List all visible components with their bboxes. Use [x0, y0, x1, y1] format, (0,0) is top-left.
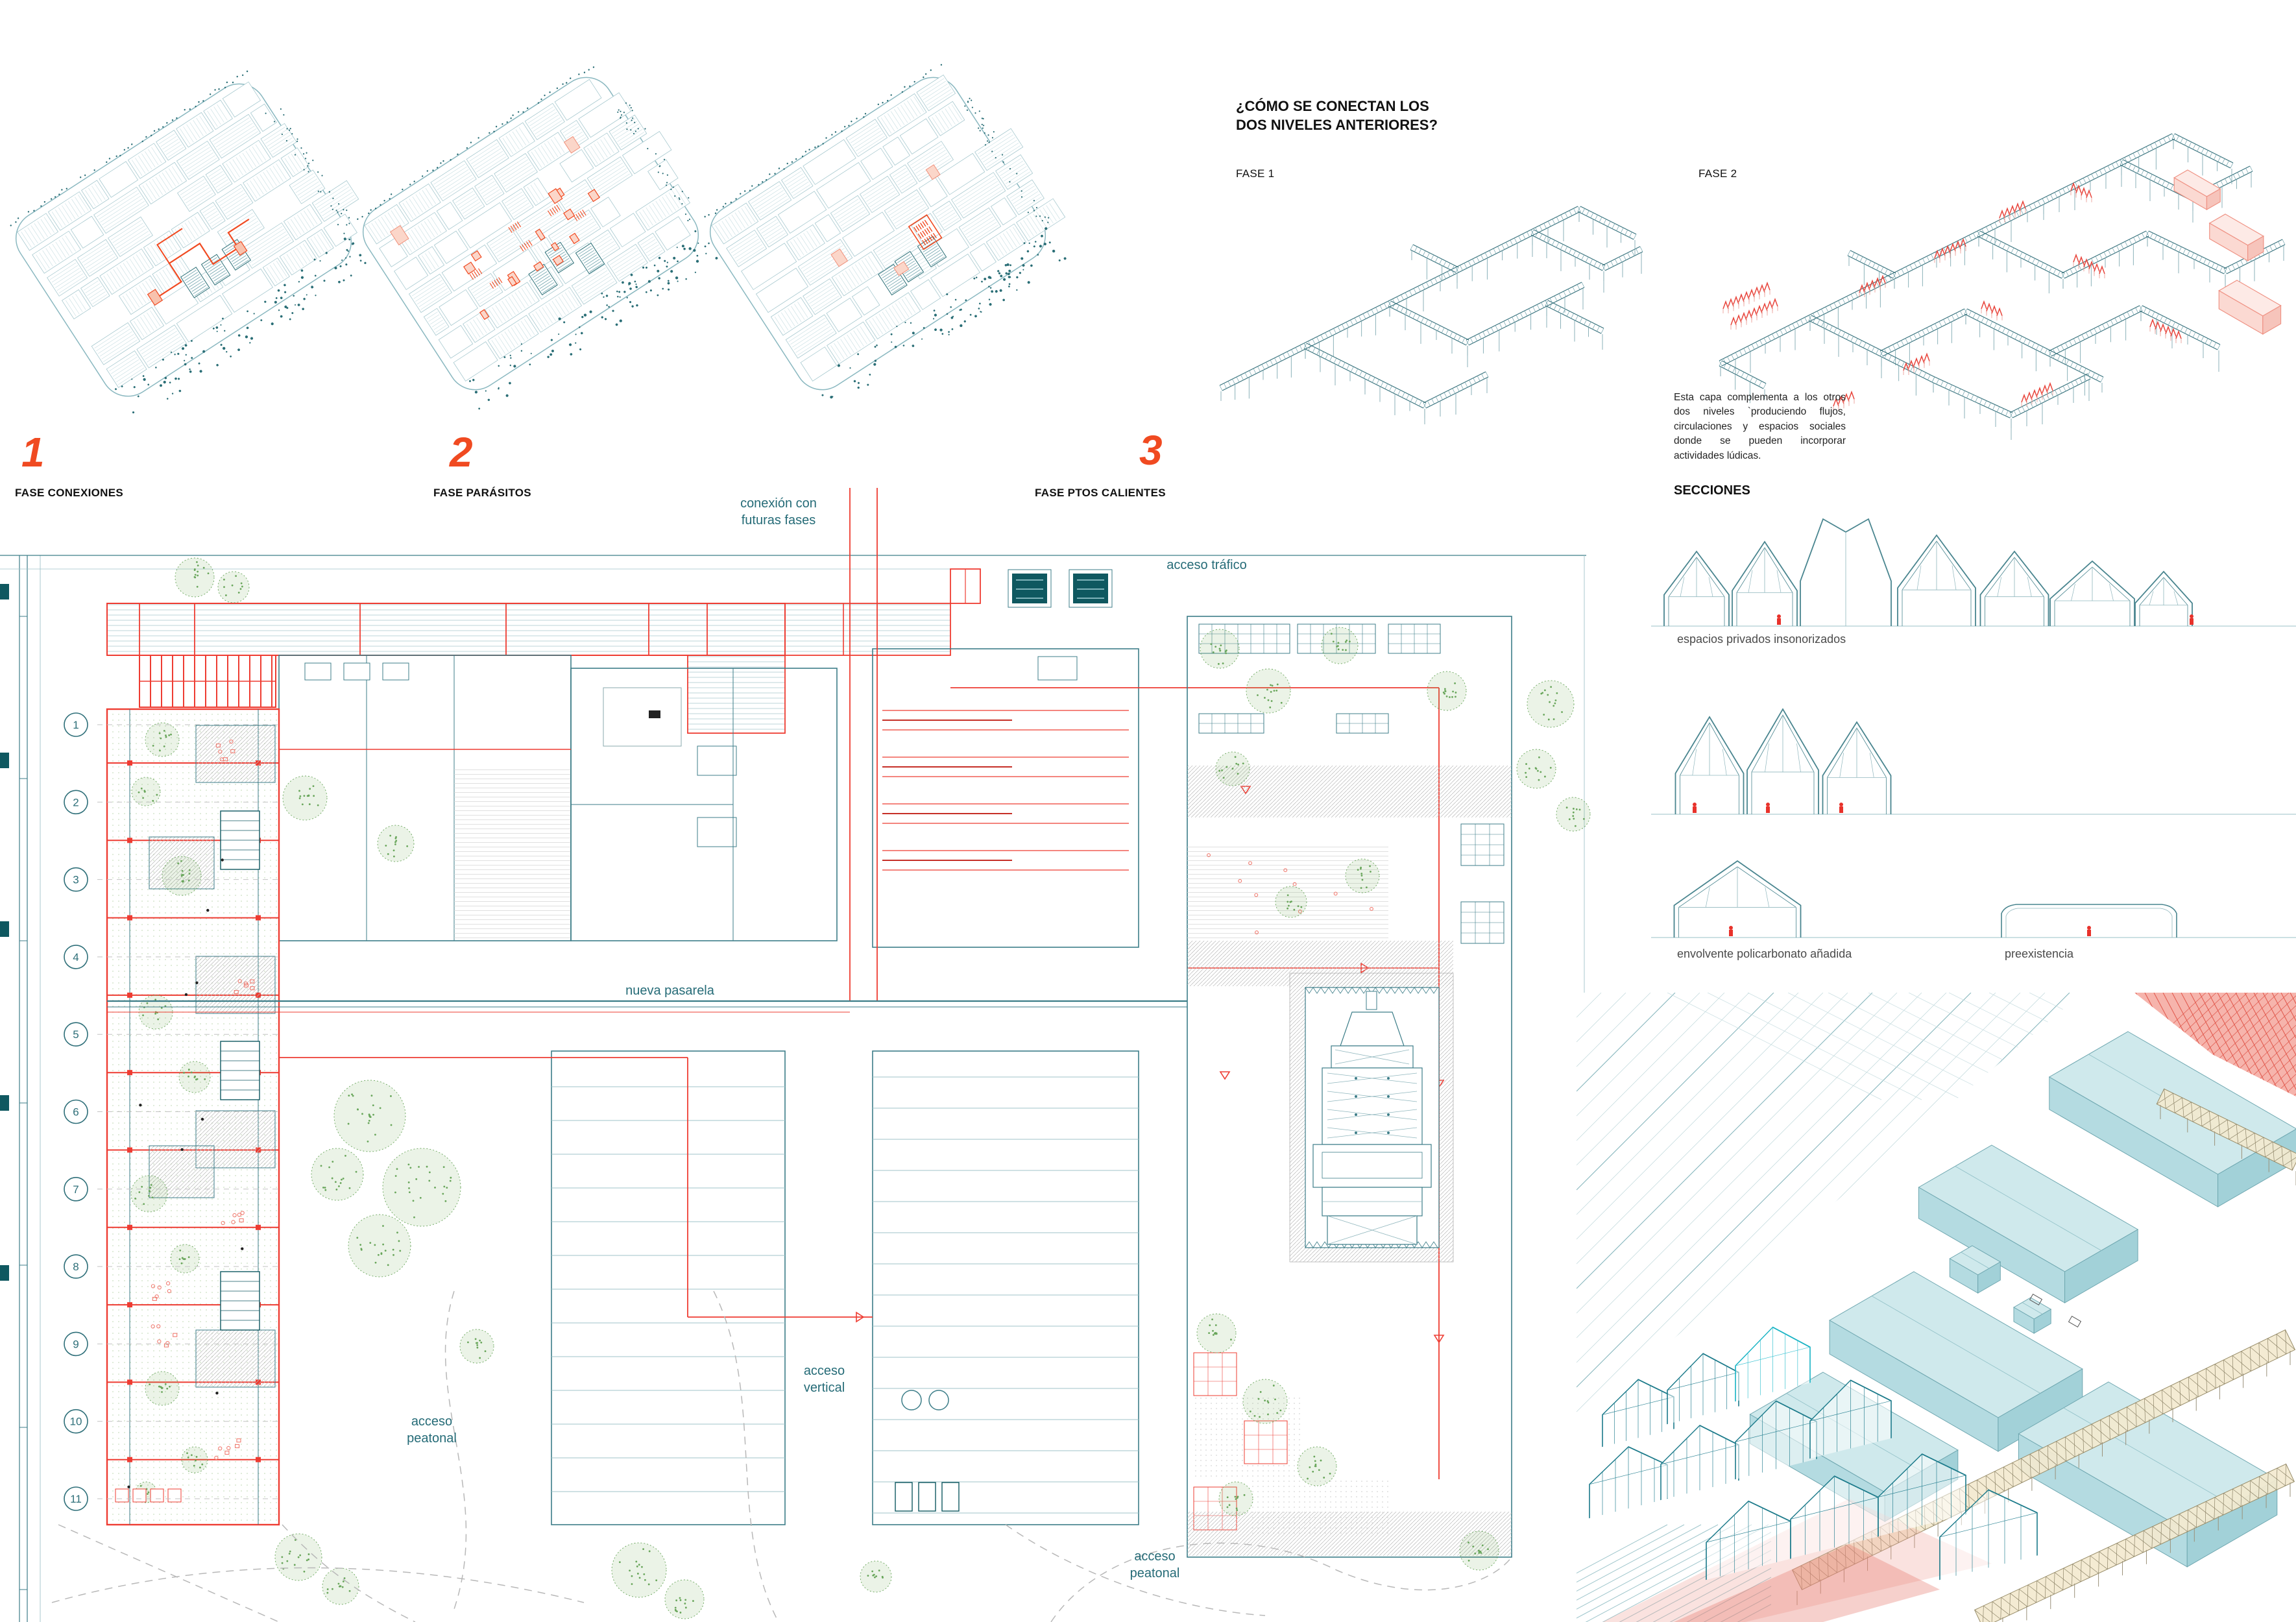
- phase-3-number: 3: [1139, 430, 1163, 471]
- section-label-envolvente: envolvente policarbonato añadida: [1677, 947, 1852, 961]
- svg-text:9: 9: [73, 1338, 79, 1350]
- plan-label-acceso-trafico: acceso tráfico: [1142, 557, 1272, 574]
- phase-1-label: FASE CONEXIONES: [15, 487, 123, 500]
- section-label-insonorizados: espacios privados insonorizados: [1677, 633, 1846, 646]
- plan-label-conexion: conexión con futuras fases: [714, 495, 843, 529]
- svg-text:3: 3: [73, 874, 79, 886]
- svg-text:6: 6: [73, 1106, 79, 1118]
- phase-3-label: FASE PTOS CALIENTES: [1035, 487, 1166, 500]
- plan-label-acceso-peatonal-bottom: acceso peatonal: [1103, 1548, 1207, 1582]
- svg-text:7: 7: [73, 1183, 79, 1196]
- connection-question-title: ¿CÓMO SE CONECTAN LOS DOS NIVELES ANTERI…: [1236, 97, 1438, 134]
- final-axonometric-render: [1577, 993, 2296, 1622]
- fase-1-axonometric-drawing: [1207, 143, 1667, 467]
- site-plan-phase-1-drawing: [10, 45, 363, 451]
- master-plan-drawing: 1234567891011: [0, 519, 1596, 1622]
- svg-text:10: 10: [70, 1416, 82, 1428]
- svg-text:4: 4: [73, 951, 79, 963]
- plan-label-nueva-pasarela: nueva pasarela: [610, 982, 730, 999]
- presentation-board: 1 FASE CONEXIONES 2 FASE PARÁSITOS 3 FAS…: [0, 0, 2296, 1622]
- section-label-preexistencia: preexistencia: [2005, 947, 2073, 961]
- phase-2-number: 2: [450, 431, 473, 473]
- svg-text:1: 1: [73, 719, 79, 731]
- svg-text:2: 2: [73, 796, 79, 808]
- phase-2-label: FASE PARÁSITOS: [433, 487, 531, 500]
- sections-title: SECCIONES: [1674, 483, 1750, 498]
- svg-text:5: 5: [73, 1028, 79, 1041]
- plan-label-acceso-peatonal-left: acceso peatonal: [381, 1413, 482, 1447]
- plan-label-acceso-vertical: acceso vertical: [777, 1362, 871, 1396]
- svg-text:8: 8: [73, 1261, 79, 1273]
- svg-text:11: 11: [70, 1493, 82, 1505]
- site-plan-phase-3-drawing: [704, 39, 1067, 454]
- layer-description-paragraph: Esta capa complementa a los otros dos ni…: [1674, 391, 1846, 463]
- site-plan-phase-2-drawing: [357, 39, 710, 444]
- phase-1-number: 1: [21, 431, 45, 473]
- sections-drawing: [1648, 506, 2296, 976]
